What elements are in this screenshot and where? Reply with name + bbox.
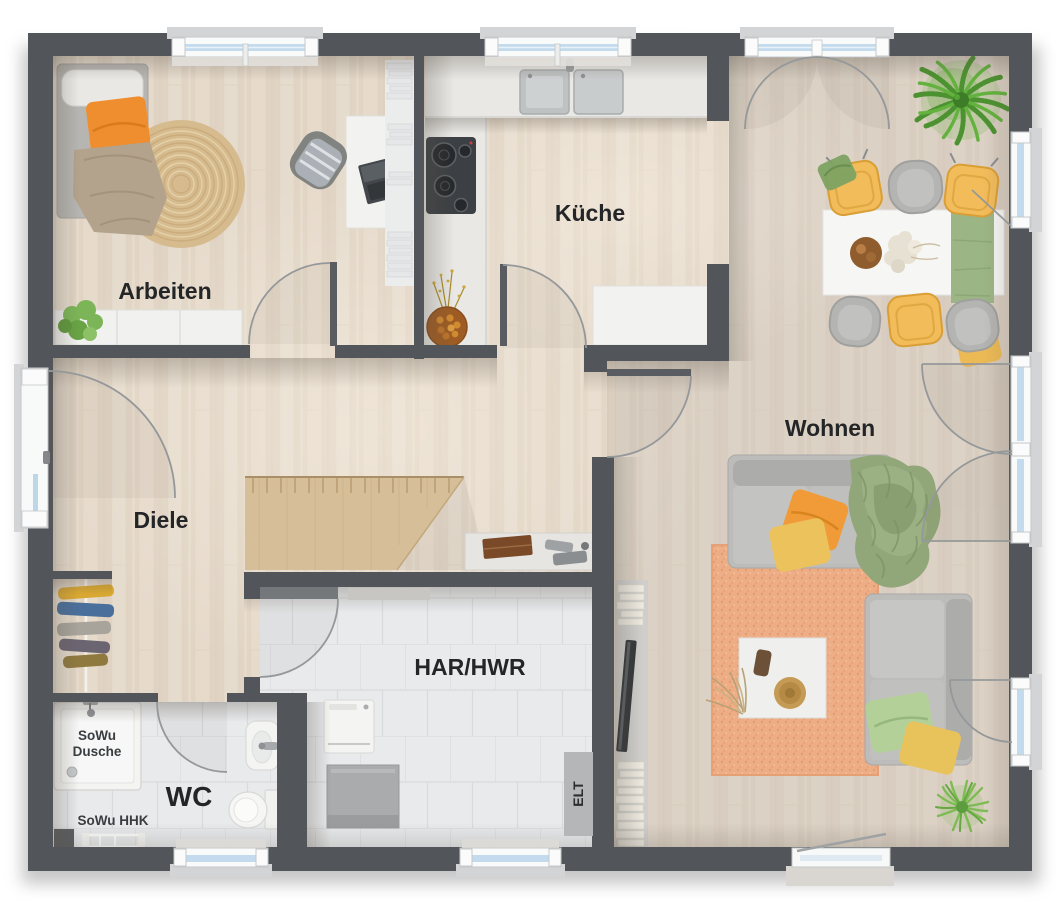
svg-text:Küche: Küche <box>555 200 625 226</box>
svg-text:Wohnen: Wohnen <box>785 415 875 441</box>
svg-text:Diele: Diele <box>134 507 189 533</box>
svg-text:SoWu HHK: SoWu HHK <box>78 813 149 828</box>
svg-text:SoWu: SoWu <box>78 728 116 743</box>
svg-text:WC: WC <box>166 781 213 812</box>
svg-text:ELT: ELT <box>570 781 586 807</box>
svg-text:HAR/HWR: HAR/HWR <box>414 654 526 680</box>
svg-text:Dusche: Dusche <box>73 744 122 759</box>
svg-text:Arbeiten: Arbeiten <box>118 278 211 304</box>
